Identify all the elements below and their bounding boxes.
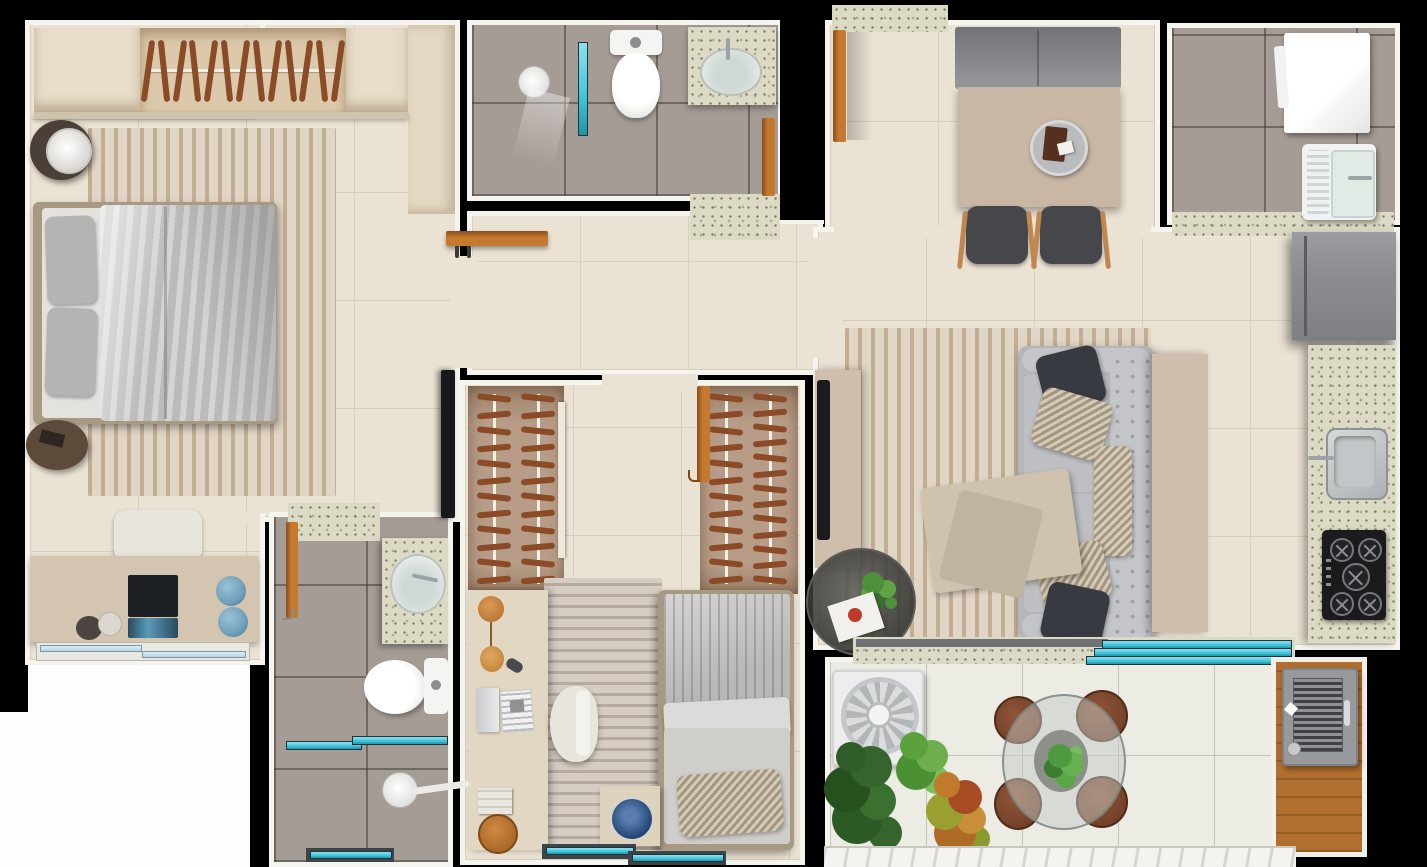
hanger <box>284 40 296 102</box>
wardrobe-cabinet <box>408 25 455 214</box>
bedroom2-door <box>697 386 710 482</box>
wardrobe-shelf-right <box>346 28 408 112</box>
hanger <box>709 542 743 551</box>
hanger <box>477 575 511 584</box>
hanger <box>521 426 555 436</box>
hanger <box>709 459 743 469</box>
wardrobe-ledge <box>34 112 408 119</box>
burner-top-right <box>1358 538 1382 562</box>
bedroom1-window-pane-1 <box>40 645 142 652</box>
bathroom2-threshold <box>288 503 380 541</box>
hall-living-opening <box>808 238 842 358</box>
hanger <box>477 558 511 568</box>
hanger <box>236 40 251 102</box>
hanger <box>221 40 233 102</box>
hanger <box>521 525 555 535</box>
bedroom1-door-opening <box>450 256 478 368</box>
sofa-pillow-stripe-2 <box>1094 446 1132 556</box>
hanger <box>753 454 787 464</box>
bedroom1-window-pane-2 <box>142 651 246 658</box>
closet-right-rail-1 <box>706 390 746 588</box>
hanger <box>709 476 743 485</box>
hanger <box>709 509 743 518</box>
balcony-plant-dark-fern <box>836 742 866 772</box>
grill-knob <box>1287 742 1301 756</box>
hanger <box>316 40 328 102</box>
bedroom1-duvet <box>100 205 276 421</box>
desk-sphere-2 <box>218 607 248 637</box>
hanger <box>477 542 511 551</box>
toilet2-flush-button <box>431 680 441 690</box>
dining-bench-seam <box>1037 30 1039 86</box>
hanger <box>753 484 787 494</box>
laundry-sink-ribs <box>1307 150 1329 214</box>
entry-wall <box>780 20 824 224</box>
balcony-plant-croton <box>934 772 960 798</box>
bedroom2-door-opening <box>602 374 698 392</box>
hanger <box>753 561 787 570</box>
desk2-hanging-lamp <box>480 646 504 672</box>
bathroom1-sink <box>700 48 762 96</box>
balcony-glass-panel-3 <box>1086 656 1292 665</box>
bedroom2-pillow <box>676 768 784 837</box>
hanger <box>709 575 743 584</box>
hanger <box>158 40 170 102</box>
balcony-plant-bright <box>900 732 928 760</box>
cooktop-controls <box>1326 556 1331 586</box>
bedroom2-chair-back <box>576 690 590 756</box>
bedroom2-door-handle <box>688 470 700 482</box>
bedroom1-pillow-1 <box>44 215 97 305</box>
bathroom1-faucet <box>726 38 730 60</box>
hanger <box>709 525 743 535</box>
balcony-door-track <box>856 639 1108 647</box>
shower1-glass-partition <box>578 42 588 136</box>
hanger <box>521 558 555 568</box>
bedroom2-window-pane-1 <box>546 847 634 855</box>
hanger <box>477 410 511 419</box>
bathroom1-door-threshold <box>690 194 780 240</box>
hanger <box>521 410 555 419</box>
hanger <box>477 443 511 452</box>
toilet1-bowl <box>612 52 660 118</box>
hanger <box>521 492 555 502</box>
hanger <box>753 439 787 448</box>
fridge-door-seam <box>1304 236 1307 336</box>
bedroom1-pillow-2 <box>44 307 97 397</box>
hanger <box>521 509 555 518</box>
hanger <box>141 40 156 102</box>
hanger <box>753 500 787 509</box>
coat-hook-1 <box>455 246 459 258</box>
hanger <box>477 509 511 518</box>
bedroom2-window-pane-2 <box>632 854 724 862</box>
bedroom1-duvet-seam <box>164 207 167 419</box>
desk-sphere-1 <box>216 576 246 606</box>
ac-fan-hub <box>866 702 892 728</box>
hanger <box>172 40 187 102</box>
entry-threshold <box>832 5 948 32</box>
hanger <box>189 40 201 102</box>
entry-door <box>833 30 846 142</box>
hanger <box>477 393 511 403</box>
laundry-faucet <box>1348 176 1372 180</box>
bathroom1-door <box>762 118 775 196</box>
desk2-lamp-cord <box>490 622 492 648</box>
dining-chair-1 <box>966 206 1028 264</box>
balcony-table-plant <box>1048 744 1072 768</box>
kitchen-faucet <box>1308 456 1334 460</box>
hall-coat-shelf <box>446 231 548 246</box>
burner-bottom-right <box>1358 592 1382 616</box>
floor-plan-render <box>0 0 1427 867</box>
hanger <box>477 492 511 502</box>
hanger <box>253 40 265 102</box>
bathroom2-shower-glass-1 <box>286 741 362 750</box>
hanger <box>753 469 787 478</box>
bedroom1-lamp <box>46 128 92 174</box>
hanger <box>521 476 555 485</box>
magazine-red-logo <box>848 608 862 622</box>
fridge <box>1292 232 1396 340</box>
hanger <box>753 408 787 417</box>
nightstand-blue-plate <box>610 797 654 841</box>
hanger <box>753 575 787 585</box>
hanger <box>477 426 511 436</box>
laundry-sink-basin <box>1331 150 1375 218</box>
grill-grate <box>1293 678 1343 752</box>
bathroom2-door-handle <box>282 608 294 620</box>
bathroom2-shower-glass-2 <box>352 736 448 745</box>
hanger <box>299 40 314 102</box>
closet-left-rail-2 <box>518 390 558 588</box>
hanger <box>204 40 219 102</box>
hanger <box>709 492 743 502</box>
bedroom2-laptop <box>477 688 499 732</box>
grill-handle <box>1344 700 1350 726</box>
desk2-vase <box>478 814 518 854</box>
washing-machine <box>1284 33 1370 133</box>
hanger <box>521 393 555 403</box>
hanger <box>477 459 511 469</box>
hanger <box>709 443 743 452</box>
toilet2-bowl <box>364 660 426 714</box>
bedroom1-desk-chair <box>114 510 202 562</box>
wardrobe-shelf-left <box>34 28 140 112</box>
exterior-area-edge <box>0 712 30 867</box>
hanger <box>267 40 282 102</box>
desk-bowl-white <box>98 612 122 636</box>
bedroom1-laptop-screen <box>128 618 178 638</box>
burner-bottom-left <box>1330 592 1354 616</box>
hanger <box>753 530 787 539</box>
bedroom1-wardrobe-hanger-rail <box>140 28 346 114</box>
closet-left-rail-1 <box>474 390 514 588</box>
hanger <box>753 515 787 525</box>
desk2-pot <box>478 596 504 622</box>
balcony-railing <box>824 846 1296 867</box>
entry-door-shadow <box>847 32 873 140</box>
kitchen-sink-basin <box>1334 436 1376 488</box>
hanger <box>753 423 787 433</box>
bathroom2-window-pane <box>310 851 392 859</box>
desk2-books <box>478 788 512 814</box>
hanger <box>331 40 346 102</box>
hanger <box>477 476 511 485</box>
living-console <box>1152 354 1208 632</box>
bathroom2-sink <box>390 554 446 614</box>
burner-center <box>1342 563 1370 591</box>
dining-chair-2 <box>1040 206 1102 264</box>
living-tv <box>817 380 830 540</box>
toilet1-flush-button <box>630 37 641 48</box>
burner-top-left <box>1330 538 1354 562</box>
hanger <box>709 558 743 568</box>
bedroom1-laptop <box>128 575 178 617</box>
bedroom1-tv <box>441 370 455 518</box>
hanger <box>753 545 787 555</box>
hanger <box>521 542 555 551</box>
closet-right-rail-2 <box>750 390 790 588</box>
hanger <box>521 459 555 469</box>
hanger <box>521 443 555 452</box>
bedroom2-chair <box>550 686 598 762</box>
exterior-area <box>28 660 250 867</box>
hanger <box>709 426 743 436</box>
hanger <box>709 410 743 419</box>
coat-hook-2 <box>467 246 471 258</box>
keyboard-touchpad <box>510 700 525 713</box>
closet-left-door-edge <box>558 402 565 558</box>
hanger <box>477 525 511 535</box>
hanger <box>753 393 787 403</box>
bathroom2-door <box>286 522 298 618</box>
hanger <box>709 393 743 403</box>
